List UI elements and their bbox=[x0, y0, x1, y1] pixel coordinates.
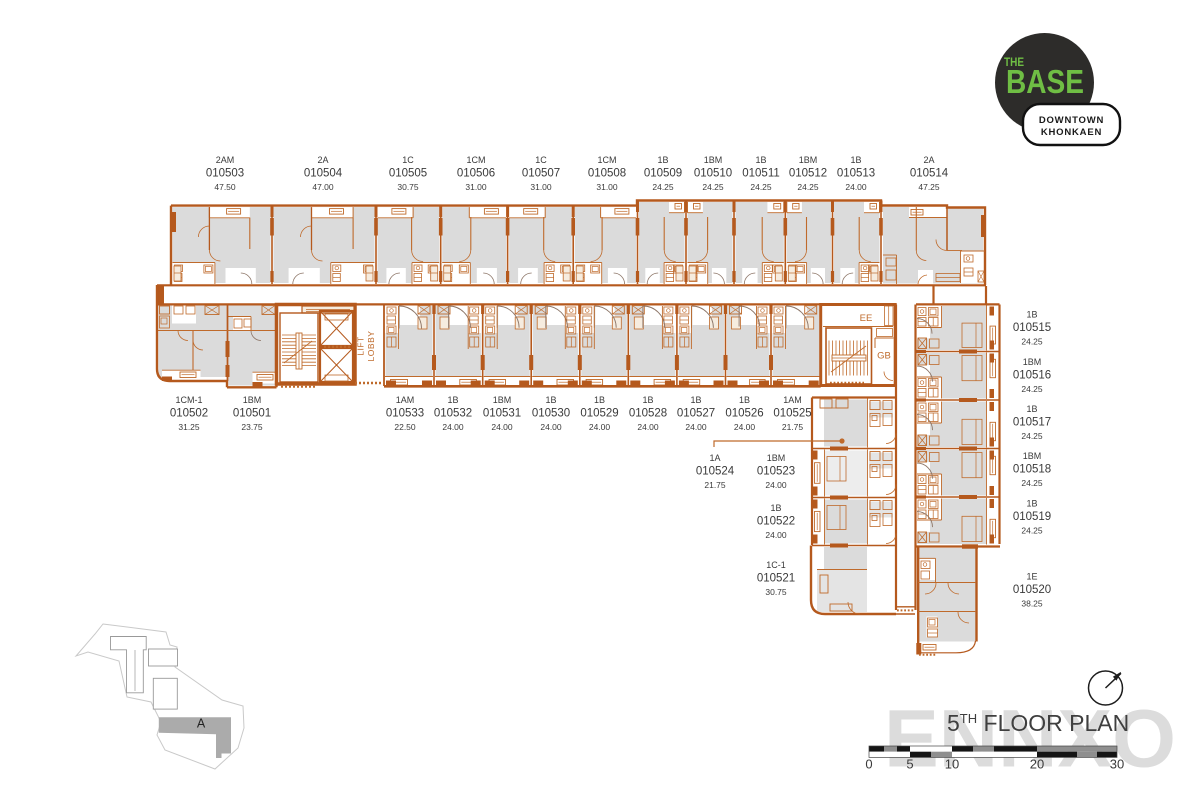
svg-text:1B: 1B bbox=[545, 395, 556, 405]
svg-text:KHONKAEN: KHONKAEN bbox=[1041, 127, 1102, 138]
svg-text:24.25: 24.25 bbox=[652, 182, 674, 192]
svg-text:1B: 1B bbox=[739, 395, 750, 405]
svg-text:1A: 1A bbox=[709, 453, 720, 463]
svg-text:1BM: 1BM bbox=[767, 453, 786, 463]
svg-text:31.00: 31.00 bbox=[465, 182, 487, 192]
svg-text:010526: 010526 bbox=[725, 408, 763, 420]
svg-text:2AM: 2AM bbox=[216, 155, 235, 165]
svg-text:A: A bbox=[197, 717, 206, 731]
svg-text:010502: 010502 bbox=[170, 408, 208, 420]
svg-text:010531: 010531 bbox=[483, 408, 521, 420]
svg-text:010527: 010527 bbox=[677, 408, 715, 420]
svg-text:1BM: 1BM bbox=[704, 155, 723, 165]
svg-text:24.25: 24.25 bbox=[750, 182, 772, 192]
svg-text:24.00: 24.00 bbox=[637, 422, 659, 432]
svg-text:31.00: 31.00 bbox=[596, 182, 618, 192]
svg-text:24.00: 24.00 bbox=[734, 422, 756, 432]
svg-text:30.75: 30.75 bbox=[765, 587, 787, 597]
svg-text:GB: GB bbox=[877, 351, 891, 362]
svg-text:1B: 1B bbox=[594, 395, 605, 405]
svg-text:010506: 010506 bbox=[457, 168, 495, 180]
svg-text:010525: 010525 bbox=[773, 408, 811, 420]
svg-text:1C: 1C bbox=[535, 155, 547, 165]
svg-text:1B: 1B bbox=[657, 155, 668, 165]
svg-text:1BM: 1BM bbox=[493, 395, 512, 405]
svg-text:1B: 1B bbox=[642, 395, 653, 405]
svg-text:010511: 010511 bbox=[742, 168, 780, 180]
svg-text:1B: 1B bbox=[447, 395, 458, 405]
svg-text:21.75: 21.75 bbox=[704, 480, 726, 490]
svg-text:5: 5 bbox=[906, 757, 913, 772]
svg-text:1AM: 1AM bbox=[783, 395, 802, 405]
svg-text:1CM-1: 1CM-1 bbox=[175, 395, 202, 405]
svg-text:24.00: 24.00 bbox=[540, 422, 562, 432]
svg-text:0: 0 bbox=[865, 757, 872, 772]
svg-text:1B: 1B bbox=[1026, 404, 1037, 414]
svg-text:1BM: 1BM bbox=[1023, 451, 1042, 461]
svg-text:21.75: 21.75 bbox=[782, 422, 804, 432]
svg-text:LOBBY: LOBBY bbox=[366, 331, 376, 362]
svg-text:24.25: 24.25 bbox=[1021, 337, 1043, 347]
svg-text:24.00: 24.00 bbox=[765, 530, 787, 540]
svg-text:22.50: 22.50 bbox=[394, 422, 416, 432]
svg-text:23.75: 23.75 bbox=[241, 422, 263, 432]
svg-text:010519: 010519 bbox=[1013, 511, 1051, 523]
svg-text:010503: 010503 bbox=[206, 168, 244, 180]
svg-text:010517: 010517 bbox=[1013, 417, 1051, 429]
svg-text:24.00: 24.00 bbox=[765, 480, 787, 490]
svg-text:010522: 010522 bbox=[757, 516, 795, 528]
svg-text:010515: 010515 bbox=[1013, 322, 1051, 334]
svg-text:BASE: BASE bbox=[1006, 63, 1084, 100]
svg-text:1B: 1B bbox=[755, 155, 766, 165]
svg-text:24.00: 24.00 bbox=[442, 422, 464, 432]
svg-text:1B: 1B bbox=[1026, 310, 1037, 320]
svg-text:010513: 010513 bbox=[837, 168, 875, 180]
svg-text:1CM: 1CM bbox=[466, 155, 485, 165]
svg-text:010518: 010518 bbox=[1013, 464, 1051, 476]
svg-text:1CM: 1CM bbox=[597, 155, 616, 165]
svg-text:010521: 010521 bbox=[757, 573, 795, 585]
svg-text:010508: 010508 bbox=[588, 168, 626, 180]
svg-text:010505: 010505 bbox=[389, 168, 427, 180]
svg-text:31.25: 31.25 bbox=[178, 422, 200, 432]
svg-text:1C-1: 1C-1 bbox=[766, 560, 786, 570]
svg-text:38.25: 38.25 bbox=[1021, 599, 1043, 609]
svg-text:24.25: 24.25 bbox=[797, 182, 819, 192]
svg-text:1BM: 1BM bbox=[243, 395, 262, 405]
svg-text:47.50: 47.50 bbox=[214, 182, 236, 192]
svg-text:24.25: 24.25 bbox=[1021, 384, 1043, 394]
svg-text:20: 20 bbox=[1030, 757, 1044, 772]
svg-text:010533: 010533 bbox=[386, 408, 424, 420]
svg-text:24.00: 24.00 bbox=[589, 422, 611, 432]
svg-text:LIFT: LIFT bbox=[356, 336, 366, 355]
svg-text:010512: 010512 bbox=[789, 168, 827, 180]
svg-text:24.00: 24.00 bbox=[491, 422, 513, 432]
svg-text:24.25: 24.25 bbox=[1021, 478, 1043, 488]
svg-text:24.25: 24.25 bbox=[702, 182, 724, 192]
svg-text:010520: 010520 bbox=[1013, 584, 1051, 596]
svg-text:24.00: 24.00 bbox=[685, 422, 707, 432]
svg-text:24.25: 24.25 bbox=[1021, 526, 1043, 536]
svg-text:1C: 1C bbox=[402, 155, 414, 165]
svg-text:010510: 010510 bbox=[694, 168, 732, 180]
svg-text:24.25: 24.25 bbox=[1021, 431, 1043, 441]
svg-text:010504: 010504 bbox=[304, 168, 343, 180]
svg-text:30: 30 bbox=[1110, 757, 1124, 772]
svg-text:2A: 2A bbox=[317, 155, 328, 165]
svg-text:10: 10 bbox=[945, 757, 959, 772]
svg-text:010523: 010523 bbox=[757, 466, 795, 478]
svg-text:010524: 010524 bbox=[696, 466, 735, 478]
svg-text:010516: 010516 bbox=[1013, 370, 1051, 382]
svg-text:1BM: 1BM bbox=[1023, 357, 1042, 367]
svg-text:010507: 010507 bbox=[522, 168, 560, 180]
svg-text:30.75: 30.75 bbox=[397, 182, 419, 192]
svg-text:31.00: 31.00 bbox=[530, 182, 552, 192]
svg-text:1B: 1B bbox=[770, 503, 781, 513]
svg-text:010528: 010528 bbox=[629, 408, 667, 420]
svg-text:1B: 1B bbox=[690, 395, 701, 405]
svg-text:1B: 1B bbox=[1026, 499, 1037, 509]
svg-text:DOWNTOWN: DOWNTOWN bbox=[1039, 115, 1104, 126]
svg-text:010514: 010514 bbox=[910, 168, 949, 180]
svg-text:EE: EE bbox=[860, 313, 873, 324]
svg-text:010509: 010509 bbox=[644, 168, 682, 180]
svg-text:2A: 2A bbox=[923, 155, 934, 165]
svg-text:1E: 1E bbox=[1026, 572, 1037, 582]
svg-text:24.00: 24.00 bbox=[845, 182, 867, 192]
svg-text:010530: 010530 bbox=[532, 408, 570, 420]
svg-text:1BM: 1BM bbox=[799, 155, 818, 165]
svg-text:010501: 010501 bbox=[233, 408, 271, 420]
svg-text:47.00: 47.00 bbox=[312, 182, 334, 192]
svg-text:010532: 010532 bbox=[434, 408, 472, 420]
svg-text:47.25: 47.25 bbox=[918, 182, 940, 192]
svg-text:010529: 010529 bbox=[580, 408, 618, 420]
svg-text:1AM: 1AM bbox=[396, 395, 415, 405]
svg-text:1B: 1B bbox=[850, 155, 861, 165]
